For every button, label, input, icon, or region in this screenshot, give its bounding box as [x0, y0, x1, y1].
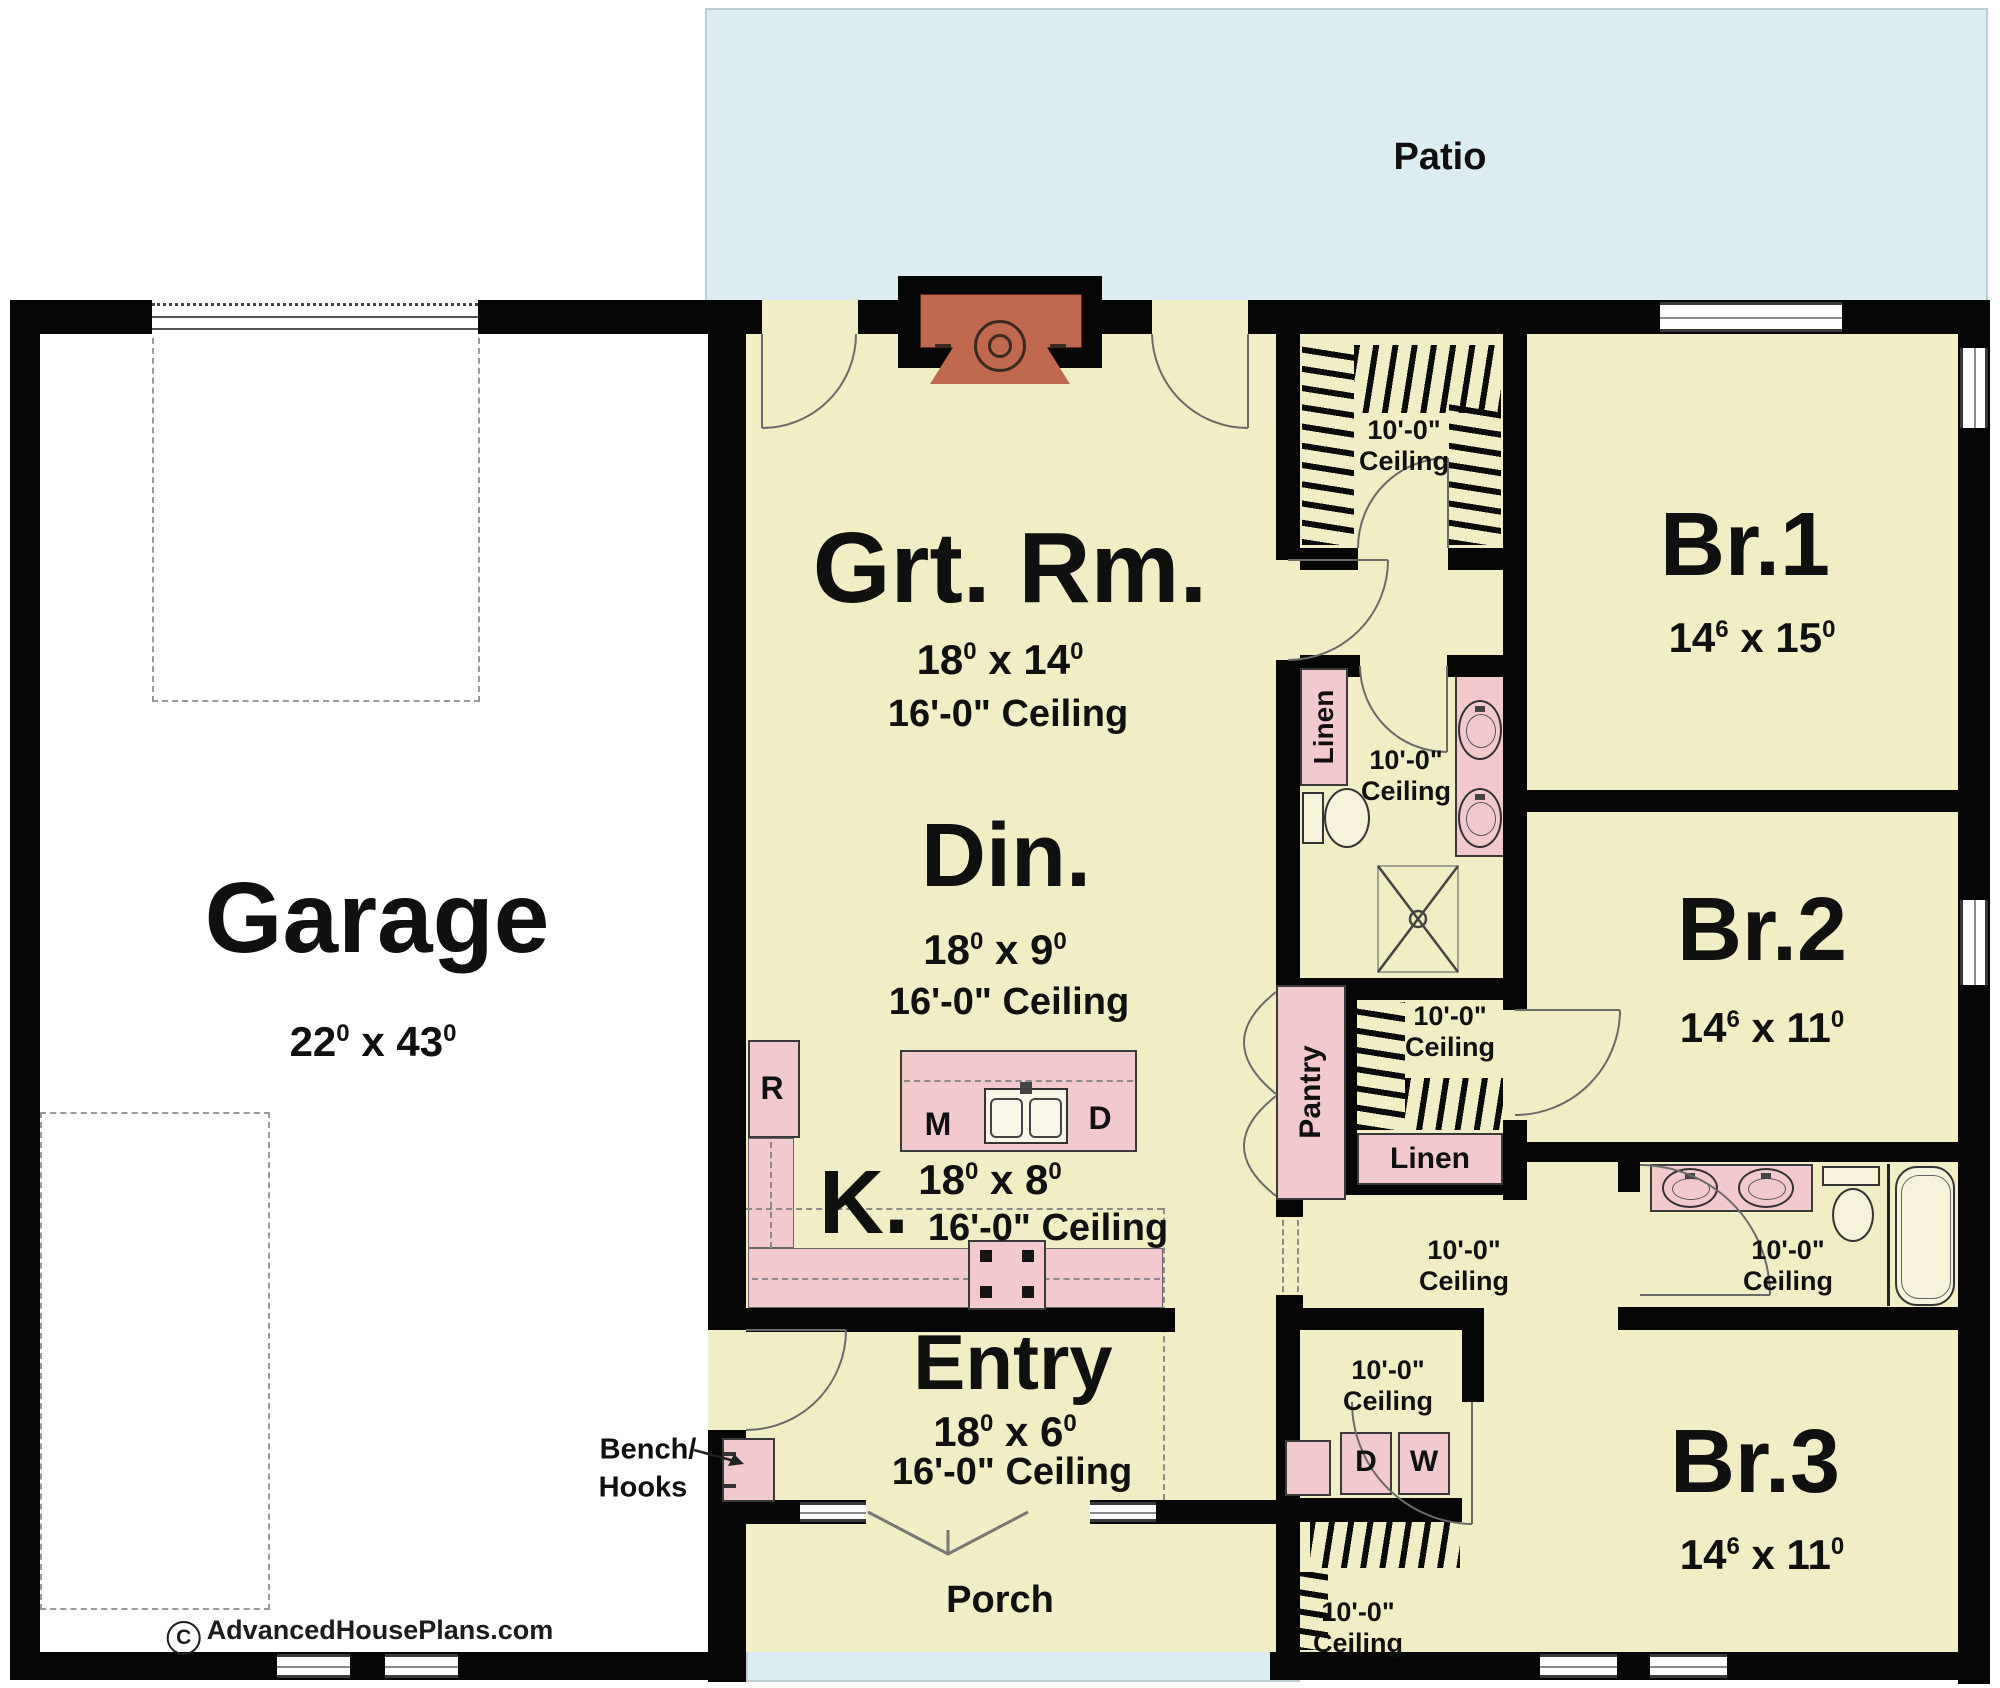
patio-door-opening-1	[762, 300, 858, 336]
great-room-label: Grt. Rm.	[813, 518, 1207, 618]
wall-wic-bottom-l	[1300, 548, 1358, 570]
br2-closet-hatch-left	[1357, 1002, 1405, 1130]
master-sink-2	[1458, 788, 1502, 848]
window-br2-right	[1960, 900, 1988, 985]
great-room-ceiling: 16'-0" Ceiling	[888, 695, 1128, 733]
wall-br2-closet-left	[1345, 1000, 1357, 1190]
wic-hatch-left	[1302, 345, 1354, 545]
kitchen-sink	[984, 1088, 1068, 1144]
counter-dash-h	[752, 1278, 1160, 1280]
linen-hall-label: Linen	[1390, 1144, 1470, 1174]
copyright-icon: C	[167, 1621, 201, 1655]
window-br3-1	[1540, 1654, 1617, 1678]
fireplace-fan-icon	[974, 320, 1026, 372]
master-sink-1	[1458, 700, 1502, 760]
window-br1-top	[1660, 302, 1842, 332]
wall-spine-stub-a	[1276, 1200, 1303, 1217]
bench-hook-1	[722, 1452, 736, 1456]
cased-opening-dash-1	[1282, 1220, 1284, 1292]
wall-house-left	[708, 300, 746, 1330]
ceiling-break-v	[1163, 1208, 1165, 1500]
ceiling10-hall: 10'-0"Ceiling	[1419, 1235, 1509, 1297]
garage-label: Garage	[205, 868, 550, 968]
hallbath-toilet-bowl	[1832, 1188, 1874, 1242]
dining-label: Din.	[921, 811, 1091, 901]
ceiling10-br3-closet: 10'-0"Ceiling	[1313, 1597, 1403, 1659]
garage-entry-door-opening	[708, 1330, 746, 1430]
wall-hallbath-bottom	[1618, 1307, 1958, 1330]
great-room-dims: 180 x 140	[917, 639, 1084, 681]
br2-dims: 146 x 110	[1680, 1007, 1845, 1049]
dishwasher-label: D	[1088, 1102, 1111, 1134]
ceiling10-wic: 10'-0"Ceiling	[1359, 415, 1449, 477]
hallbath-sink-1	[1662, 1168, 1718, 1208]
dining-dims: 180 x 90	[923, 929, 1067, 971]
wall-spine-stub-b	[1276, 1295, 1303, 1313]
br1-dims: 146 x 150	[1669, 617, 1836, 659]
front-door-opening	[866, 1500, 1090, 1524]
entry-dims: 180 x 60	[933, 1411, 1077, 1453]
ceiling10-hall-bath: 10'-0"Ceiling	[1743, 1235, 1833, 1297]
garage-dashed-area-top	[152, 318, 480, 702]
fridge-label: R	[760, 1072, 783, 1104]
kitchen-ceiling: 16'-0" Ceiling	[928, 1209, 1168, 1247]
kitchen-label: K.	[819, 1158, 909, 1248]
linen-bath-label: Linen	[1310, 690, 1338, 765]
pantry-label: Pantry	[1296, 1045, 1326, 1138]
window-br3-2	[1650, 1654, 1727, 1678]
wall-br2-bottom	[1527, 1142, 1958, 1162]
br2-closet-hatch-bottom	[1405, 1078, 1503, 1130]
br2-label: Br.2	[1677, 885, 1847, 975]
window-entry-left	[800, 1502, 866, 1522]
wall-hallbath-left-stub	[1618, 1162, 1640, 1192]
fireplace-dash-left	[935, 344, 951, 348]
washer-label: W	[1410, 1447, 1438, 1477]
fireplace-dash-right	[1050, 344, 1066, 348]
wall-garage-left	[10, 300, 40, 1680]
wall-laundry-right	[1462, 1308, 1484, 1402]
wall-laundry-top	[1300, 1308, 1462, 1330]
entry-label: Entry	[913, 1323, 1112, 1401]
patio-area	[705, 8, 1988, 304]
patio-label: Patio	[1394, 138, 1487, 176]
window-garage-2	[385, 1654, 458, 1678]
range	[968, 1240, 1046, 1310]
master-toilet-tank	[1302, 792, 1324, 844]
counter-dash-v	[770, 1142, 772, 1248]
entry-bench	[722, 1438, 775, 1502]
hallbath-sink-2	[1738, 1168, 1794, 1208]
wall-bath-divider	[1887, 1164, 1890, 1306]
br1-label: Br.1	[1660, 500, 1830, 590]
bench-label: Bench/	[600, 1433, 697, 1466]
entry-ceiling: 16'-0" Ceiling	[892, 1453, 1132, 1491]
hallbath-toilet-tank	[1822, 1166, 1880, 1186]
wall-right	[1958, 300, 1990, 1684]
patio-door-opening-2	[1152, 300, 1248, 336]
island-dash	[904, 1080, 1133, 1082]
br3-dims: 146 x 110	[1680, 1534, 1845, 1576]
wall-bath-top-r	[1447, 655, 1527, 677]
hallbath-tub	[1895, 1166, 1955, 1306]
dryer-label: D	[1355, 1447, 1377, 1477]
wall-laundry-bottom	[1300, 1498, 1462, 1522]
hooks-label: Hooks	[599, 1471, 688, 1504]
copyright: CAdvancedHousePlans.com	[167, 1617, 554, 1655]
floor-plan: Patio Porch Garage 220 x 430 Grt. Rm. 18…	[0, 0, 2000, 1688]
wall-br1-br2	[1527, 790, 1958, 812]
window-br1-right	[1960, 348, 1988, 428]
microwave-label: M	[925, 1108, 952, 1140]
cased-opening-dash-2	[1297, 1220, 1299, 1292]
dining-ceiling: 16'-0" Ceiling	[889, 983, 1129, 1021]
ceiling10-laundry: 10'-0"Ceiling	[1343, 1355, 1433, 1417]
window-entry-right	[1090, 1502, 1156, 1522]
garage-door	[152, 300, 478, 334]
br3-closet-hatch-top	[1310, 1520, 1460, 1568]
bench-hook-2	[722, 1484, 736, 1488]
wall-spine-upper	[1276, 334, 1300, 560]
wall-wic-bottom-r	[1448, 548, 1503, 570]
wall-garage-bottom	[10, 1652, 746, 1680]
ceiling10-br2-closet: 10'-0"Ceiling	[1405, 1001, 1495, 1063]
window-garage-1	[277, 1654, 350, 1678]
br3-label: Br.3	[1670, 1417, 1840, 1507]
porch-label: Porch	[946, 1581, 1054, 1619]
kitchen-dims: 180 x 80	[918, 1159, 1062, 1201]
garage-dashed-area-side	[40, 1112, 270, 1610]
garage-dims: 220 x 430	[290, 1021, 457, 1063]
ceiling10-master-bath: 10'-0"Ceiling	[1361, 745, 1451, 807]
laundry-cabinet	[1285, 1440, 1331, 1496]
wic-hatch-right	[1449, 400, 1501, 545]
wall-spine-mid	[1276, 660, 1300, 985]
